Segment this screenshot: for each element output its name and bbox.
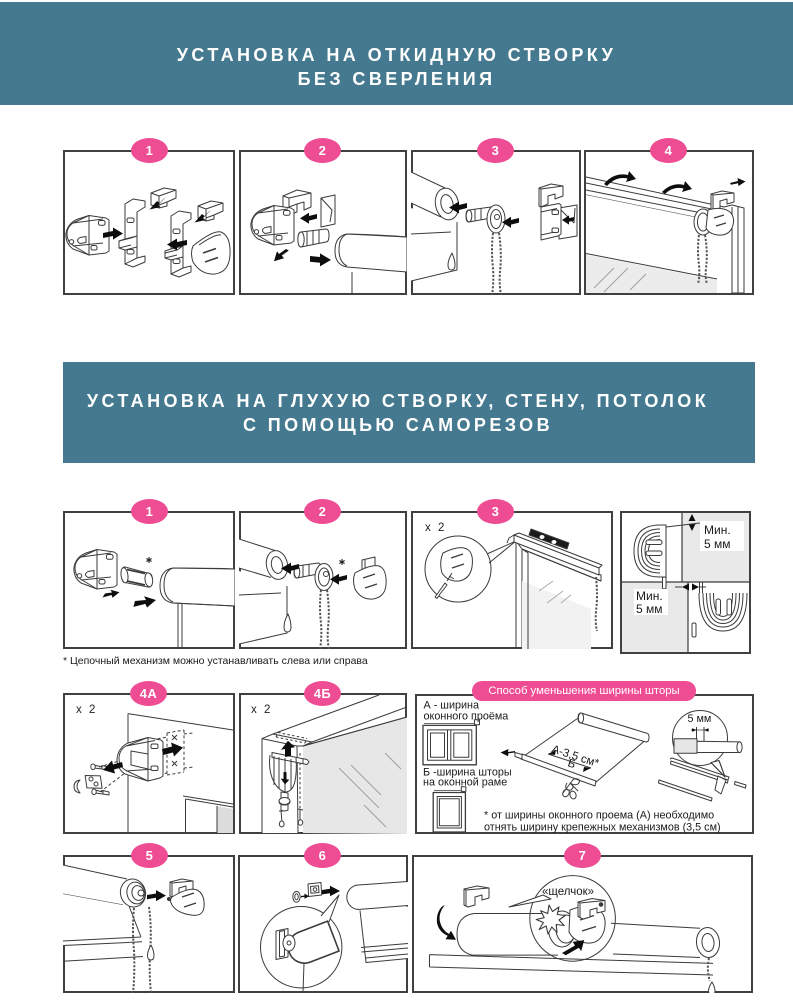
svg-text:5 мм: 5 мм — [636, 602, 663, 616]
svg-text:* от ширины оконного проема (А: * от ширины оконного проема (А) необходи… — [484, 810, 714, 822]
svg-text:отнять ширину крепежных механи: отнять ширину крепежных механизмов (3,5 … — [484, 822, 721, 834]
svg-text:x 2: x 2 — [76, 704, 97, 716]
svg-text:«щелчок»: «щелчок» — [542, 886, 594, 898]
svg-text:x 2: x 2 — [251, 704, 272, 716]
svg-text:5 мм: 5 мм — [704, 537, 731, 551]
svg-text:Мин.: Мин. — [636, 589, 663, 603]
svg-text:5 мм: 5 мм — [688, 713, 712, 725]
svg-text:Мин.: Мин. — [704, 523, 731, 537]
svg-text:оконного проёма: оконного проёма — [424, 711, 509, 723]
svg-text:x 2: x 2 — [425, 522, 446, 534]
